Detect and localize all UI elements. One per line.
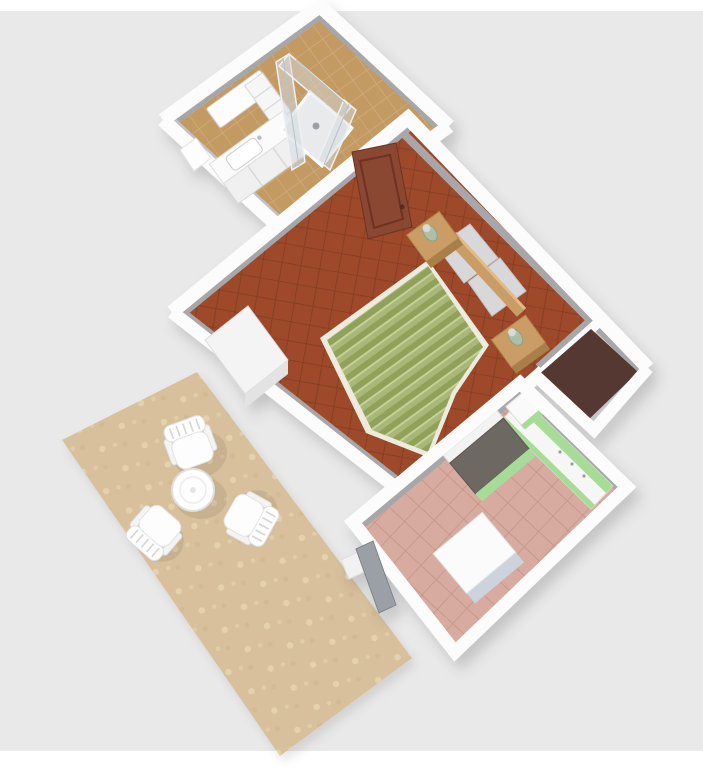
shower-drain — [313, 123, 320, 130]
bottom-white-strip — [0, 751, 703, 768]
door-knob — [400, 205, 405, 210]
garden-table-center — [190, 487, 196, 493]
floor-plan-render — [0, 0, 703, 768]
floor-plan-canvas — [0, 0, 703, 768]
top-white-strip — [0, 0, 703, 11]
